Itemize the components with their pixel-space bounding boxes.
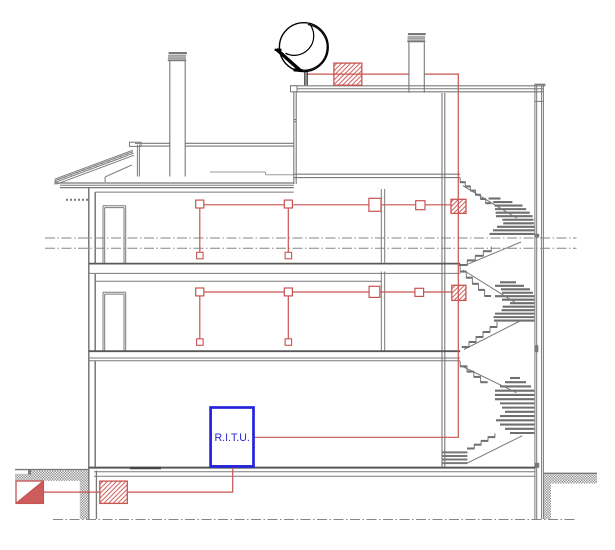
svg-text:R.I.T.U.: R.I.T.U. (215, 432, 250, 444)
